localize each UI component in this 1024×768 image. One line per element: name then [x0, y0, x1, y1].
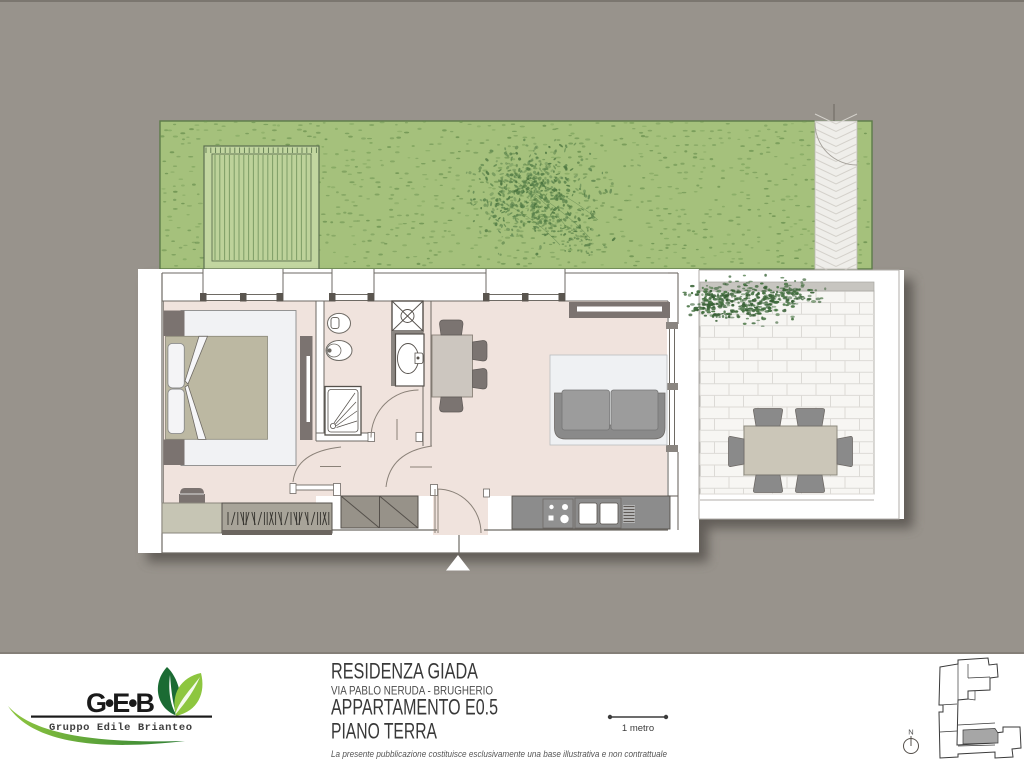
svg-text:1 metro: 1 metro	[622, 723, 654, 734]
svg-text:La presente pubblicazione cost: La presente pubblicazione costituisce es…	[331, 749, 667, 760]
svg-text:Gruppo Edile Brianteo: Gruppo Edile Brianteo	[49, 722, 192, 734]
svg-text:N: N	[908, 728, 913, 737]
svg-text:APPARTAMENTO E0.5: APPARTAMENTO E0.5	[331, 695, 498, 720]
svg-text:PIANO TERRA: PIANO TERRA	[331, 719, 437, 744]
svg-text:RESIDENZA GIADA: RESIDENZA GIADA	[331, 659, 478, 684]
svg-text:G•E•B: G•E•B	[86, 688, 155, 718]
